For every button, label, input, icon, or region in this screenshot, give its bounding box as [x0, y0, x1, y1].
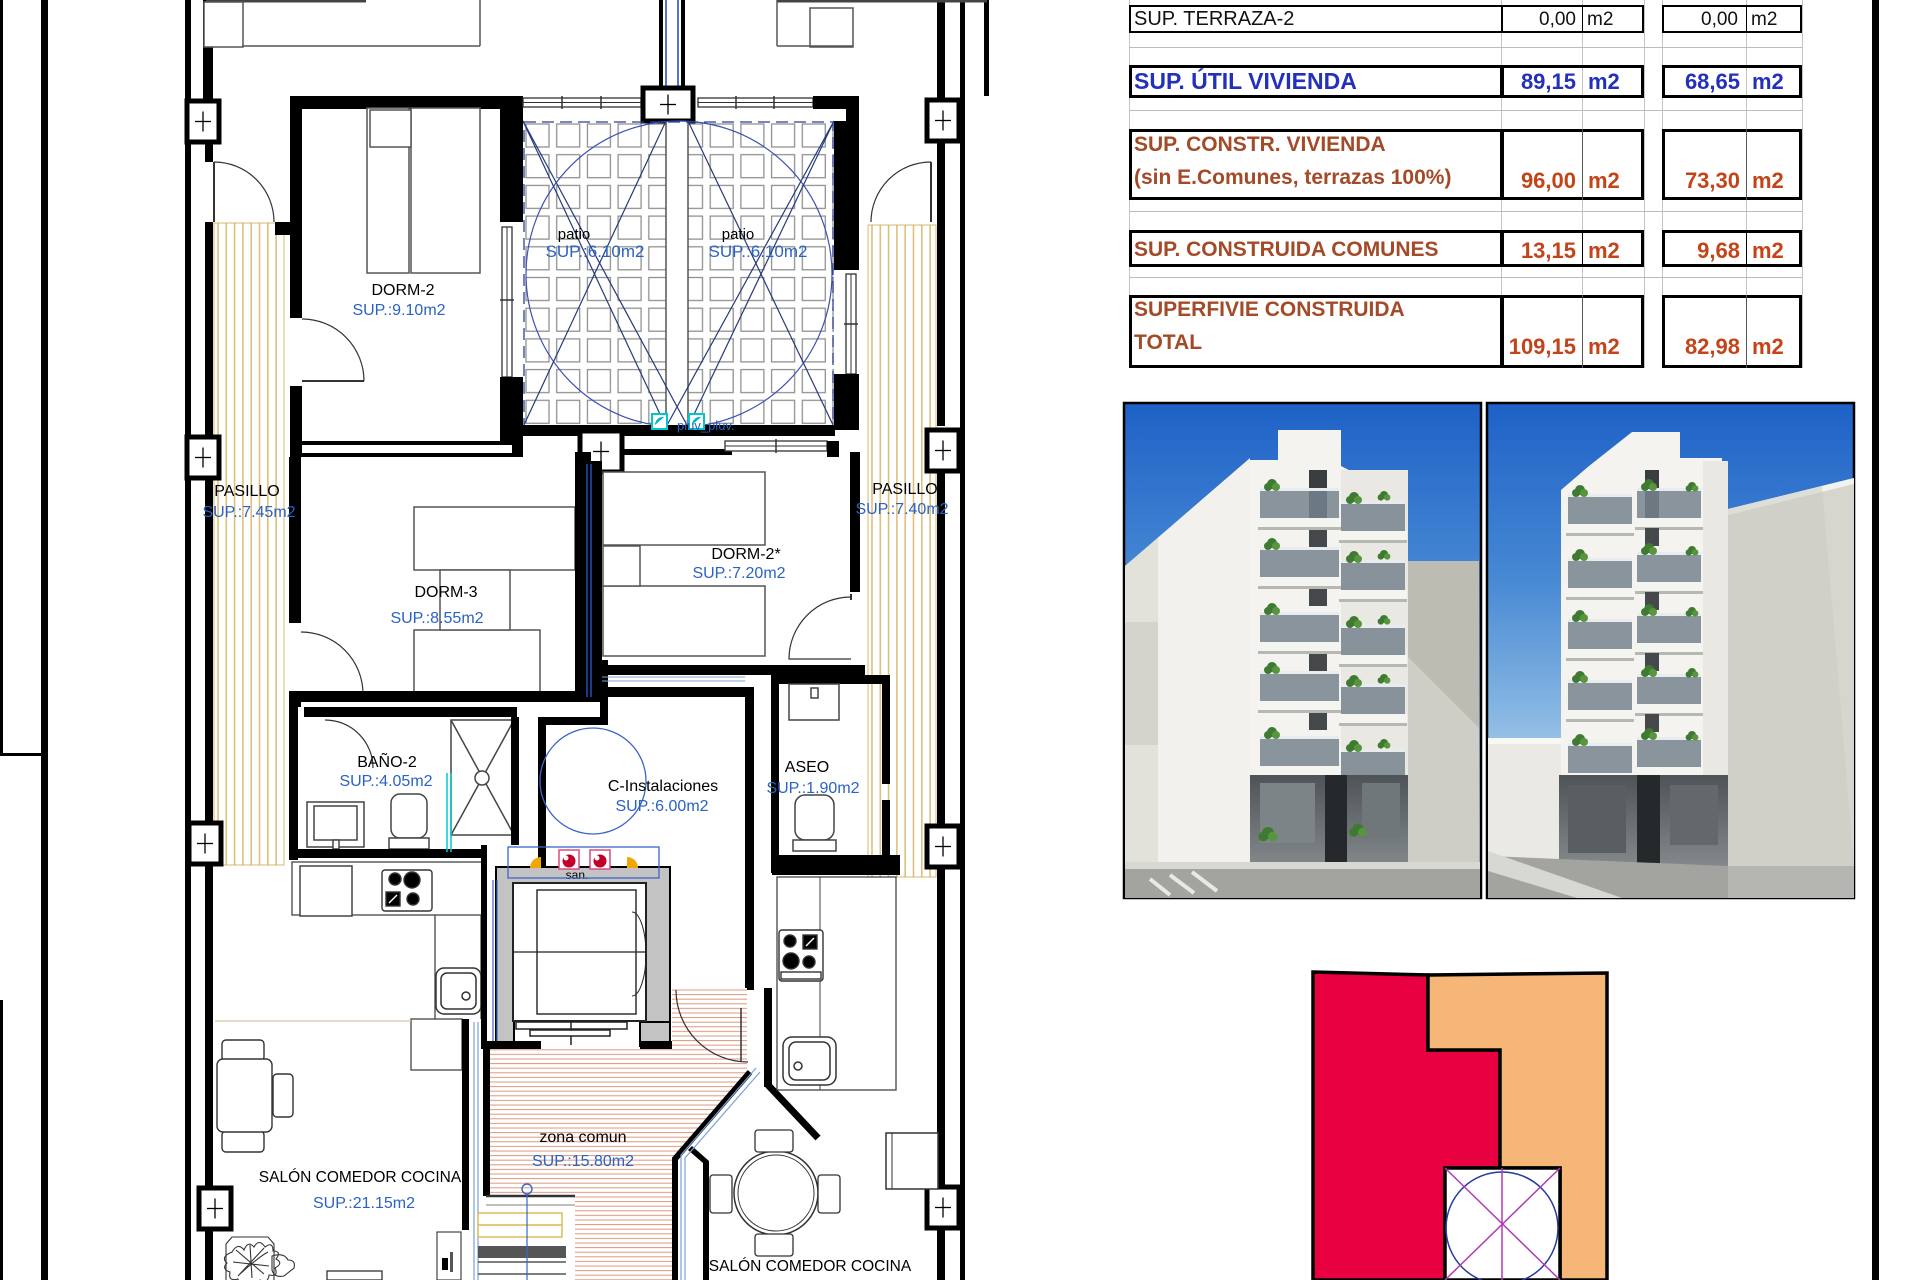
svg-text:DORM-2*: DORM-2* [711, 546, 780, 563]
svg-text:BAÑO-2: BAÑO-2 [357, 751, 417, 771]
svg-text:SUP.:7.20m2: SUP.:7.20m2 [692, 565, 785, 582]
svg-text:SUP.:15.80m2: SUP.:15.80m2 [532, 1153, 634, 1170]
svg-text:DORM-3: DORM-3 [414, 584, 477, 601]
svg-text:SUP.:7.40m2: SUP.:7.40m2 [855, 501, 948, 518]
svg-text:san.: san. [566, 868, 589, 882]
svg-text:PASILLO: PASILLO [214, 483, 280, 500]
svg-text:ASEO: ASEO [785, 759, 829, 776]
svg-text:zona comun: zona comun [539, 1129, 626, 1146]
svg-text:SUP.:6.00m2: SUP.:6.00m2 [615, 798, 708, 815]
svg-text:pluv_pluv.: pluv_pluv. [677, 418, 735, 433]
svg-text:SUP.:21.15m2: SUP.:21.15m2 [313, 1195, 415, 1212]
svg-text:SALÓN COMEDOR COCINA: SALÓN COMEDOR COCINA [259, 1169, 462, 1186]
svg-text:C-Instalaciones: C-Instalaciones [608, 778, 718, 795]
svg-text:PASILLO: PASILLO [872, 481, 938, 498]
svg-text:SUP.:8.55m2: SUP.:8.55m2 [390, 610, 483, 627]
svg-text:SUP.:1.90m2: SUP.:1.90m2 [766, 780, 859, 797]
svg-text:SUP.:4.05m2: SUP.:4.05m2 [339, 773, 432, 790]
svg-text:SUP.:7.45m2: SUP.:7.45m2 [202, 504, 295, 521]
svg-text:SALÓN COMEDOR COCINA: SALÓN COMEDOR COCINA [709, 1258, 912, 1275]
